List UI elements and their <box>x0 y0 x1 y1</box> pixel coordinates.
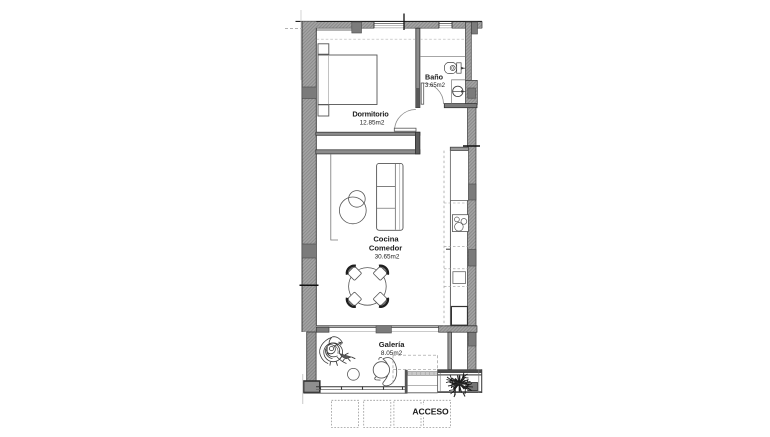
svg-text:Baño: Baño <box>425 72 444 81</box>
svg-text:8.05m2: 8.05m2 <box>381 350 403 357</box>
svg-text:30.65m2: 30.65m2 <box>375 253 400 260</box>
svg-text:Comedor: Comedor <box>369 244 402 253</box>
svg-text:Galería: Galería <box>379 340 406 349</box>
svg-text:3.65m2: 3.65m2 <box>425 83 446 89</box>
svg-text:Dormitorio: Dormitorio <box>352 110 389 119</box>
svg-text:Cocina: Cocina <box>373 234 399 243</box>
svg-text:ACCESO: ACCESO <box>412 407 449 417</box>
svg-text:12.85m2: 12.85m2 <box>360 120 385 127</box>
